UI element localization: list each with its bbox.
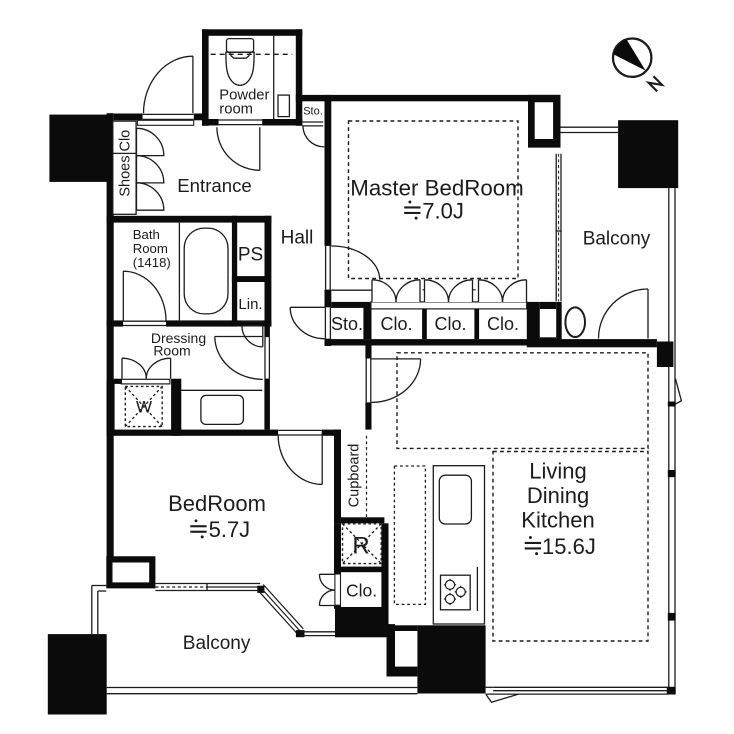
svg-text:Cupboard: Cupboard <box>347 444 363 508</box>
svg-text:room: room <box>219 102 253 118</box>
svg-text:Clo.: Clo. <box>487 314 519 334</box>
svg-text:Sto.: Sto. <box>331 314 363 334</box>
svg-text:Shoes Clo: Shoes Clo <box>117 130 133 197</box>
svg-text:Kitchen: Kitchen <box>521 507 594 532</box>
svg-text:Living: Living <box>529 458 586 483</box>
svg-text:Room: Room <box>153 343 190 359</box>
svg-text:W: W <box>136 398 152 417</box>
svg-text:5.7J: 5.7J <box>209 517 251 542</box>
svg-text:Hall: Hall <box>281 227 314 248</box>
svg-text:PS: PS <box>238 244 263 265</box>
svg-text:Lin.: Lin. <box>238 296 262 313</box>
svg-text:7.0J: 7.0J <box>422 198 464 223</box>
svg-text:Room: Room <box>133 241 168 256</box>
svg-text:Sto.: Sto. <box>303 105 323 117</box>
svg-text:15.6J: 15.6J <box>542 534 596 559</box>
svg-text:Clo.: Clo. <box>434 314 466 334</box>
svg-text:Master BedRoom: Master BedRoom <box>350 176 524 201</box>
svg-text:Dining: Dining <box>527 483 589 508</box>
svg-text:BedRoom: BedRoom <box>168 491 266 516</box>
svg-text:Entrance: Entrance <box>177 175 251 196</box>
svg-text:Bath: Bath <box>133 227 160 242</box>
svg-text:Balcony: Balcony <box>183 633 251 654</box>
svg-text:Balcony: Balcony <box>583 228 651 249</box>
svg-text:(1418): (1418) <box>133 255 171 270</box>
svg-text:R: R <box>352 533 369 560</box>
svg-text:Clo.: Clo. <box>346 580 377 600</box>
svg-text:Clo.: Clo. <box>380 314 412 334</box>
